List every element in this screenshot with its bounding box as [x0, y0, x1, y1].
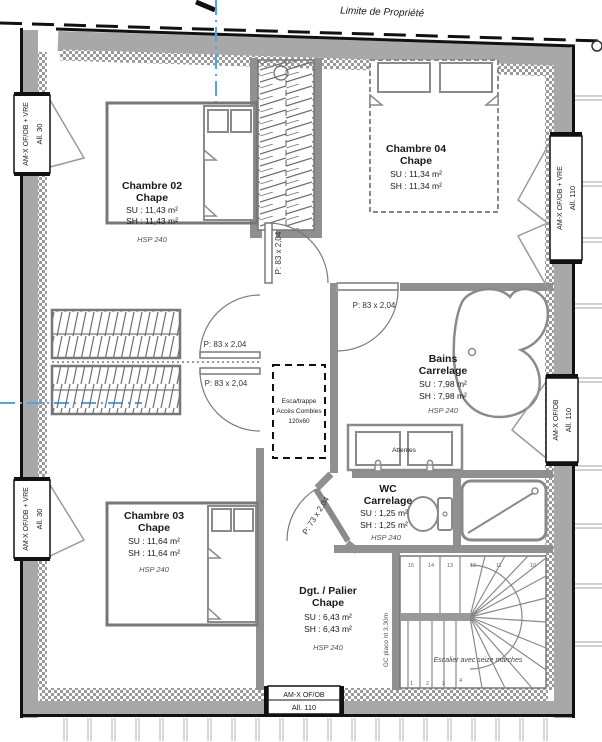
- stair-guard-note: GC placo ht 3,30m: [383, 613, 390, 667]
- attic-access-box: Esca/trappe Accès Combles 120x60: [273, 365, 325, 458]
- chambre03-su: SU : 11,64 m²: [128, 536, 180, 546]
- chambre03-finish: Chape: [138, 522, 170, 534]
- attic-access-line3: 120x60: [288, 418, 310, 425]
- chambre02-su: SU : 11,43 m²: [126, 205, 178, 215]
- bains-sh: SH : 7,98 m²: [419, 391, 467, 401]
- stair-num-15: 15: [408, 563, 414, 569]
- wc-finish: Carrelage: [364, 495, 413, 507]
- staircase: 15 14 13 12 11 10 1 2 3 4 Escalier avec …: [383, 556, 546, 688]
- floor-plan-page: Limite de Propriété Chambre 02 Chape SU …: [0, 0, 602, 742]
- stair-num-1: 1: [410, 681, 413, 687]
- stair-caption: Escalier avec seize marches: [434, 657, 523, 664]
- closet-hatched-top: [258, 60, 314, 230]
- chambre04-su: SU : 11,34 m²: [390, 169, 442, 179]
- door-hall-lower: [200, 368, 260, 431]
- stair-num-4: 4: [459, 678, 462, 684]
- door-hall-lower-label: P: 83 x 2,04: [205, 379, 248, 388]
- window-left-top-type: AM-X OF/OB + VRE: [23, 102, 30, 166]
- chambre02-hsp: HSP 240: [137, 235, 168, 244]
- window-left-top-swing: [50, 100, 84, 167]
- window-right-top-allege: All. 110: [568, 186, 577, 210]
- door-chambre02-label: P: 83 x 2,04: [274, 231, 283, 274]
- stair-num-10: 10: [530, 563, 536, 569]
- window-right-top-type: AM-X OF/OB + VRE: [557, 166, 564, 230]
- shower-tray: [462, 481, 546, 540]
- property-line-label: Limite de Propriété: [340, 6, 425, 20]
- window-left-bottom-allege: All. 30: [35, 509, 44, 530]
- room-chambre-04: Chambre 04 Chape SU : 11,34 m² SH : 11,3…: [370, 60, 498, 212]
- chambre02-name: Chambre 02: [122, 180, 182, 192]
- attic-access-line2: Accès Combles: [276, 408, 322, 415]
- stair-num-12: 12: [470, 563, 476, 569]
- palier-su: SU : 6,43 m²: [304, 612, 352, 622]
- window-left-top: AM-X OF/OB + VRE All. 30: [14, 92, 84, 176]
- bed-chambre-03: [208, 506, 256, 622]
- bed-chambre-02: [204, 106, 254, 220]
- window-right-middle-type: AM-X OF/OB: [553, 399, 560, 441]
- stair-guardrail: [400, 613, 470, 621]
- stair-num-2: 2: [426, 681, 429, 687]
- bains-finish: Carrelage: [419, 365, 468, 377]
- toilet: [408, 497, 452, 531]
- stair-num-3: 3: [442, 681, 445, 687]
- wc-hsp: HSP 240: [371, 533, 402, 542]
- attic-access-line1: Esca/trappe: [282, 398, 317, 405]
- palier-sh: SH : 6,43 m²: [304, 624, 352, 634]
- chambre04-name: Chambre 04: [386, 143, 446, 155]
- door-bains: [337, 283, 398, 351]
- door-bains-label: P: 83 x 2,04: [353, 301, 396, 310]
- chambre03-hsp: HSP 240: [139, 565, 170, 574]
- window-left-bottom-swing: [50, 485, 84, 556]
- stair-num-11: 11: [496, 563, 502, 569]
- room-chambre-02: Chambre 02 Chape SU : 11,43 m² SH : 11,4…: [107, 103, 257, 244]
- room-palier: Dgt. / Palier Chape SU : 6,43 m² SH : 6,…: [299, 585, 357, 652]
- bains-hsp: HSP 240: [428, 406, 459, 415]
- wc-sh: SH : 1,25 m²: [360, 520, 408, 530]
- bathtub: [454, 289, 548, 417]
- chambre03-sh: SH : 11,64 m²: [128, 548, 180, 558]
- door-hall-upper-label: P: 83 x 2,04: [204, 340, 247, 349]
- bains-su: SU : 7,98 m²: [419, 379, 467, 389]
- window-left-bottom-type: AM-X OF/OB + VRE: [23, 487, 30, 551]
- closets-left: [52, 310, 262, 414]
- chambre02-sh: SH : 11,43 m²: [126, 216, 178, 226]
- stair-num-13: 13: [447, 563, 453, 569]
- chambre04-sh: SH : 11,34 m²: [390, 181, 442, 191]
- sinks-note: Attentes: [392, 447, 417, 454]
- window-left-bottom: AM-X OF/OB + VRE All. 30: [14, 477, 84, 561]
- room-bains: Bains Carrelage SU : 7,98 m² SH : 7,98 m…: [348, 289, 548, 471]
- palier-hsp: HSP 240: [313, 643, 344, 652]
- window-bottom-type: AM-X OF/OB: [283, 692, 325, 699]
- window-left-top-allege: All. 30: [35, 124, 44, 145]
- chambre03-name: Chambre 03: [124, 510, 184, 522]
- room-chambre-03: Chambre 03 Chape SU : 11,64 m² SH : 11,6…: [107, 503, 257, 625]
- floor-plan-svg: Limite de Propriété Chambre 02 Chape SU …: [0, 0, 602, 742]
- stair-num-14: 14: [428, 563, 434, 569]
- window-right-middle-allege: All. 110: [564, 408, 573, 432]
- chambre02-finish: Chape: [136, 192, 168, 204]
- bains-name: Bains: [429, 353, 458, 365]
- window-bottom: AM-X OF/OB All. 110: [264, 686, 344, 714]
- north-arrow-fragment: [196, 2, 215, 10]
- wc-su: SU : 1,25 m²: [360, 508, 408, 518]
- door-wc-label: P: 73 x 2,04: [301, 495, 332, 536]
- palier-finish: Chape: [312, 597, 344, 609]
- exterior-bottom-cladding-ticks: [64, 718, 547, 741]
- wc-name: WC: [379, 483, 397, 495]
- palier-name: Dgt. / Palier: [299, 585, 357, 597]
- window-bottom-allege: All. 110: [292, 703, 316, 712]
- survey-marker-circle: [592, 41, 602, 51]
- chambre04-finish: Chape: [400, 155, 432, 167]
